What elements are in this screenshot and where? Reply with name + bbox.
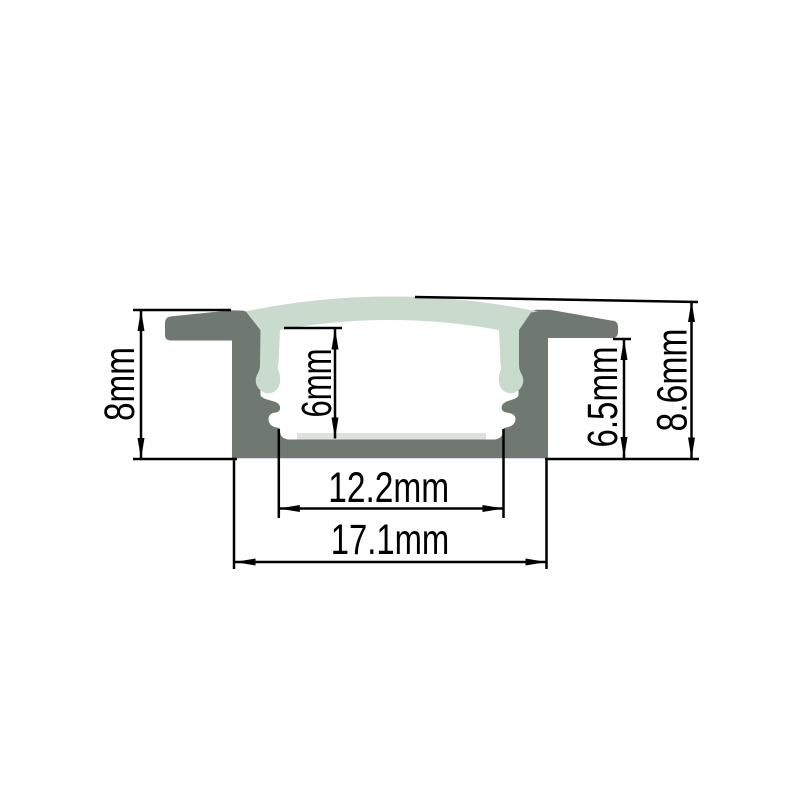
svg-text:12.2mm: 12.2mm xyxy=(328,465,449,512)
svg-text:6mm: 6mm xyxy=(294,349,341,418)
svg-text:8.6mm: 8.6mm xyxy=(650,329,697,432)
svg-text:17.1mm: 17.1mm xyxy=(331,517,450,564)
svg-text:8mm: 8mm xyxy=(97,347,144,421)
svg-text:6.5mm: 6.5mm xyxy=(580,347,627,448)
